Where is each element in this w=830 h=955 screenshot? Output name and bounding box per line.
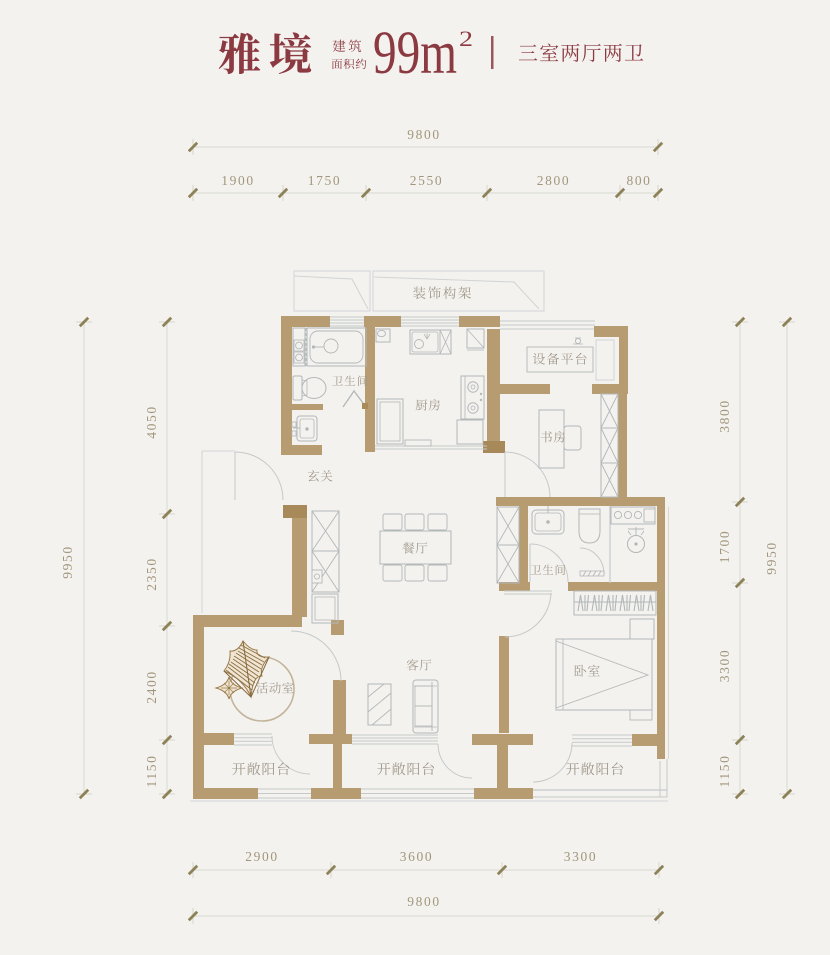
svg-text:3600: 3600 (400, 849, 433, 864)
svg-text:2550: 2550 (410, 173, 443, 188)
svg-text:1150: 1150 (717, 755, 732, 788)
svg-text:2: 2 (459, 26, 473, 51)
svg-text:4050: 4050 (144, 405, 159, 438)
svg-text:3800: 3800 (717, 399, 732, 432)
svg-text:2800: 2800 (537, 173, 570, 188)
svg-text:9800: 9800 (407, 127, 440, 142)
svg-text:2350: 2350 (144, 557, 159, 590)
svg-text:2400: 2400 (144, 670, 159, 703)
svg-text:9950: 9950 (60, 545, 75, 578)
svg-text:99m: 99m (373, 20, 457, 87)
svg-text:1150: 1150 (144, 755, 159, 788)
svg-text:3300: 3300 (717, 649, 732, 682)
svg-text:3300: 3300 (564, 849, 597, 864)
svg-text:2900: 2900 (245, 849, 278, 864)
svg-text:9950: 9950 (764, 541, 779, 574)
svg-text:800: 800 (626, 173, 651, 188)
svg-text:1750: 1750 (308, 173, 341, 188)
svg-text:9800: 9800 (407, 894, 440, 909)
svg-text:1900: 1900 (221, 173, 254, 188)
svg-text:1700: 1700 (717, 530, 732, 563)
